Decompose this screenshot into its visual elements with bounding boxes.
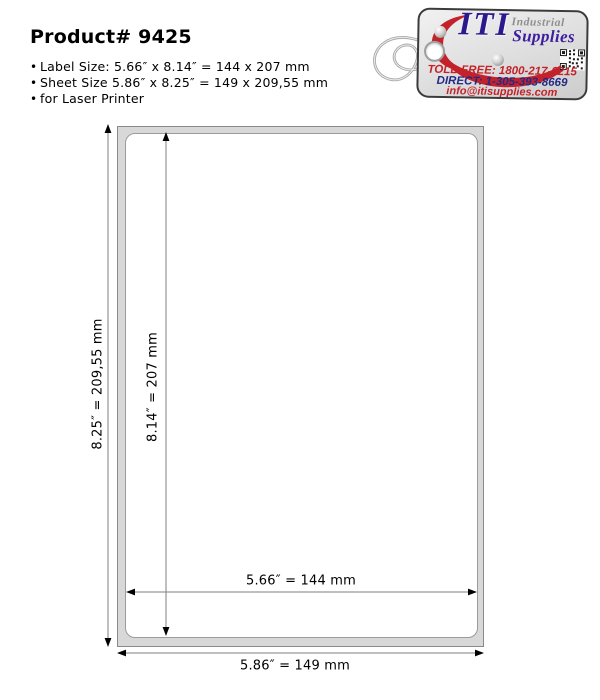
product-spec-page: Product# 9425 •Label Size: 5.66″ x 8.14″…	[0, 0, 600, 700]
label-width-dimension: 5.66″ = 144 mm	[246, 574, 356, 589]
sheet-height-dimension: 8.25″ = 209,55 mm	[91, 318, 106, 449]
sheet-width-dimension: 5.86″ = 149 mm	[240, 659, 350, 674]
label-height-dimension: 8.14″ = 207 mm	[146, 332, 161, 442]
